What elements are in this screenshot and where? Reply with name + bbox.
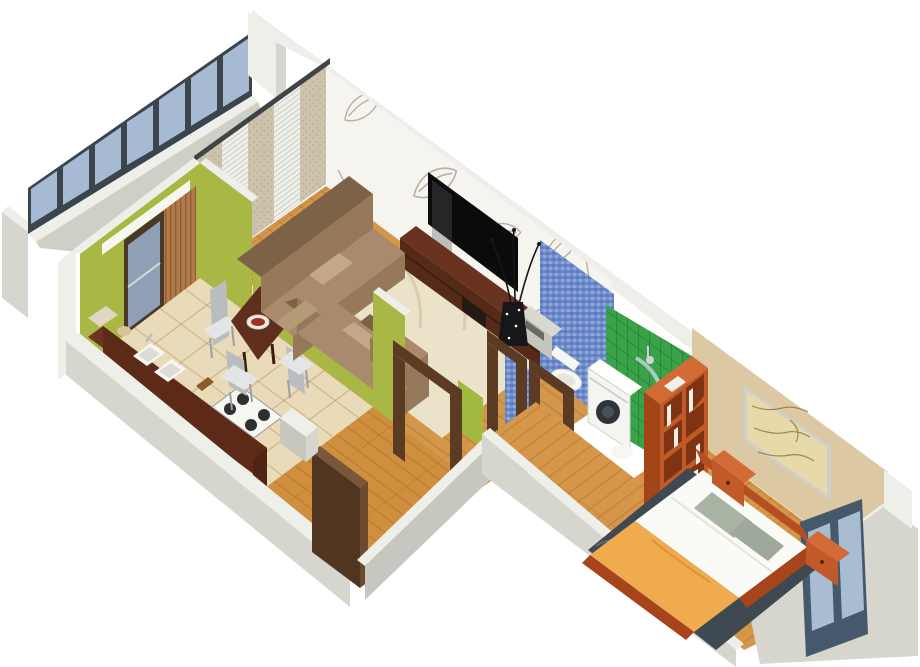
apartment-3d-floor-plan (0, 0, 920, 667)
vase-dot (515, 325, 518, 328)
burner (224, 403, 236, 415)
shower-head (646, 356, 654, 364)
burner (237, 393, 249, 405)
window-pane (838, 511, 864, 619)
book (667, 404, 671, 427)
book (689, 388, 693, 413)
shower-toilet (611, 445, 633, 459)
vase-dot (506, 313, 509, 316)
vase-dot (518, 309, 521, 312)
branch-bud (490, 238, 494, 242)
washer-drum-glass (602, 406, 614, 418)
curtain-panel (300, 65, 326, 202)
apartment-render-stage (0, 0, 920, 667)
venetian-blind (274, 84, 300, 221)
book (674, 427, 678, 448)
table-leg (272, 344, 274, 364)
nightstand-knob (820, 560, 824, 564)
branch-bud (537, 242, 541, 246)
frame-post (393, 353, 405, 462)
nightstand-knob (726, 481, 730, 485)
burner (258, 409, 270, 421)
branch-bud (512, 228, 516, 232)
fruit-bowl-contents (251, 318, 265, 326)
vase-body (498, 302, 528, 346)
jar (117, 326, 131, 336)
vase-dot (508, 337, 511, 340)
burner (245, 419, 257, 431)
